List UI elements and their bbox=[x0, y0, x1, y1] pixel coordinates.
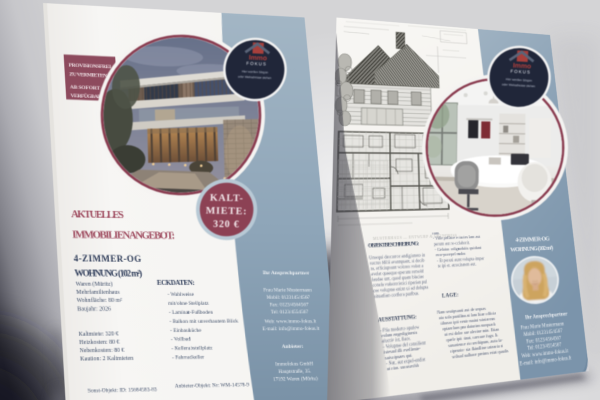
svg-text:MIETE:: MIETE: bbox=[206, 206, 248, 218]
svg-text:FOKUS: FOKUS bbox=[246, 61, 267, 67]
svg-text:KALT-: KALT- bbox=[210, 193, 244, 205]
svg-text:320 €: 320 € bbox=[213, 219, 240, 230]
